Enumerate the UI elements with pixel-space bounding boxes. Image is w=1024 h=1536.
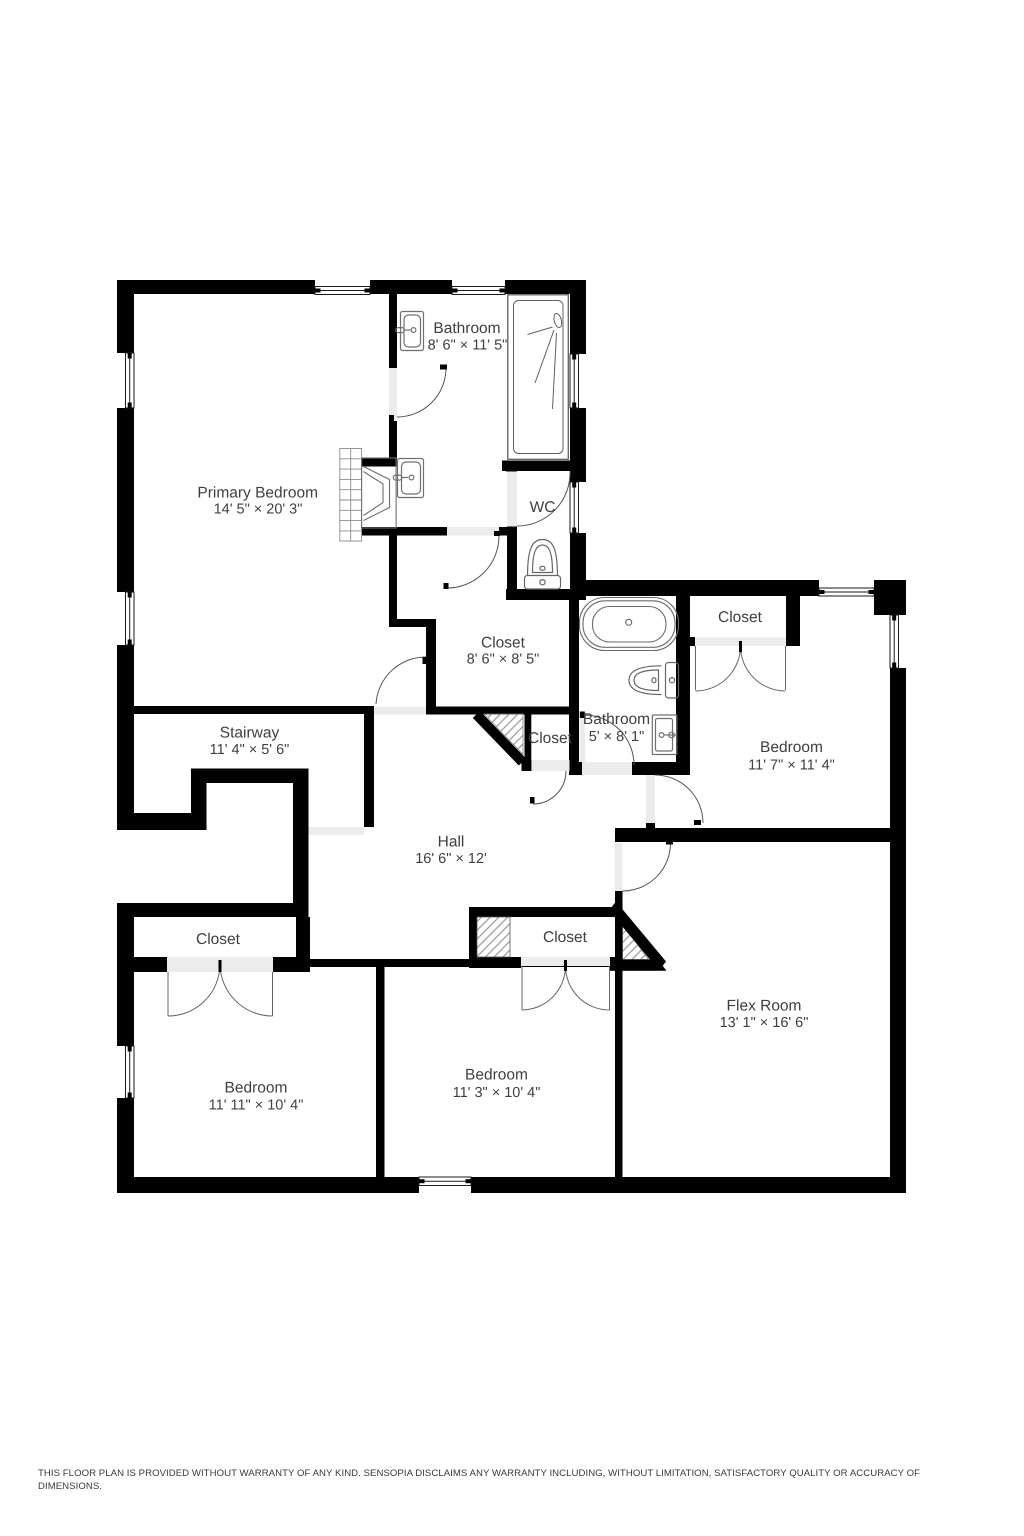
svg-text:Closet: Closet [481, 635, 526, 652]
svg-text:16' 6" × 12': 16' 6" × 12' [415, 851, 487, 867]
svg-text:Closet: Closet [718, 609, 763, 626]
svg-text:Bathroom: Bathroom [433, 320, 500, 337]
svg-text:11' 11" × 10' 4": 11' 11" × 10' 4" [209, 1098, 304, 1114]
svg-text:Bedroom: Bedroom [760, 739, 823, 756]
svg-text:WC: WC [530, 499, 556, 516]
svg-text:Hall: Hall [438, 833, 465, 850]
svg-text:Closet: Closet [543, 929, 588, 946]
svg-text:Stairway: Stairway [220, 725, 280, 742]
svg-text:Bedroom: Bedroom [465, 1066, 528, 1083]
svg-text:11' 7" × 11' 4": 11' 7" × 11' 4" [748, 757, 835, 773]
svg-text:Bathroom: Bathroom [583, 711, 650, 728]
svg-text:Closet: Closet [196, 931, 241, 948]
svg-text:13' 1" × 16' 6": 13' 1" × 16' 6" [720, 1015, 809, 1031]
svg-text:11' 4" × 5' 6": 11' 4" × 5' 6" [210, 742, 290, 758]
svg-text:14' 5" × 20' 3": 14' 5" × 20' 3" [214, 502, 303, 518]
svg-text:Flex Room: Flex Room [727, 998, 802, 1015]
svg-text:8' 6" × 8' 5": 8' 6" × 8' 5" [467, 652, 540, 668]
svg-text:Closet: Closet [528, 730, 573, 747]
svg-text:Primary Bedroom: Primary Bedroom [197, 484, 318, 501]
svg-text:11' 3" × 10' 4": 11' 3" × 10' 4" [453, 1085, 541, 1101]
svg-text:Bedroom: Bedroom [225, 1080, 288, 1097]
svg-text:8' 6" × 11' 5": 8' 6" × 11' 5" [428, 338, 508, 354]
svg-text:5' × 8' 1": 5' × 8' 1" [589, 729, 644, 745]
